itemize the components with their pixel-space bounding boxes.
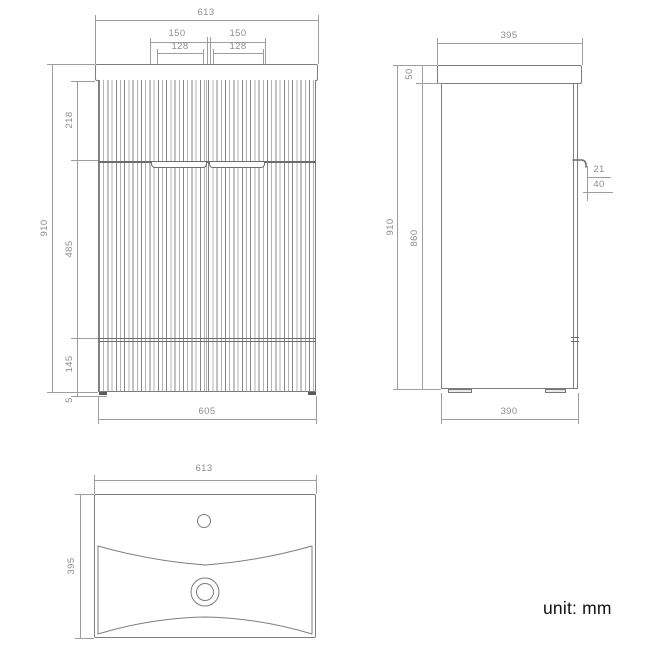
side-foot-left xyxy=(448,389,472,393)
front-dim-128-ext-4 xyxy=(263,49,264,64)
front-dim-128-left-label: 128 xyxy=(171,42,188,52)
front-dim-ext-foot-bottom xyxy=(71,396,107,397)
front-dim-485-label: 485 xyxy=(65,240,75,257)
front-dim-center-ext-a xyxy=(207,37,208,64)
front-split-line-bottom-b xyxy=(98,341,316,342)
front-split-line-top xyxy=(98,161,316,163)
side-dim-395-ext-right xyxy=(582,38,583,65)
front-handle-right xyxy=(209,162,265,168)
front-door-gap-line xyxy=(206,80,207,392)
side-body xyxy=(441,83,578,389)
front-dim-128-ext-1 xyxy=(157,49,158,64)
front-foot-left xyxy=(99,392,107,395)
basin-bowl-drawing xyxy=(94,494,316,638)
front-dim-128-left-line xyxy=(157,53,203,54)
side-dim-40-label: 40 xyxy=(593,180,604,190)
top-dim-613-ext-left xyxy=(94,475,95,494)
side-dim-390-ext-right xyxy=(578,393,579,424)
basin-bowl-outline xyxy=(98,546,312,634)
front-dim-center-ext-b xyxy=(210,37,211,64)
front-handle-left xyxy=(151,162,207,168)
top-dim-613-ext-right xyxy=(316,475,317,494)
front-dim-150-left-label: 150 xyxy=(168,29,185,39)
front-dim-605-label: 605 xyxy=(198,407,215,417)
side-dim-910-line xyxy=(397,65,398,389)
side-front-panel-line xyxy=(573,83,574,389)
front-split-line-bottom-a xyxy=(98,338,316,339)
side-dim-390-line xyxy=(441,419,578,420)
front-dim-910-ext-top xyxy=(47,64,95,65)
side-dim-21-label: 21 xyxy=(593,165,604,175)
front-dim-128-right-line xyxy=(213,53,263,54)
side-dim-390-label: 390 xyxy=(500,407,517,417)
side-dim-21-line xyxy=(587,177,611,178)
side-dim-handle-ref-line xyxy=(587,166,588,201)
side-dim-50-ext-bottom xyxy=(416,83,441,84)
side-dim-395-label: 395 xyxy=(500,31,517,41)
top-dim-395-label: 395 xyxy=(67,557,77,574)
front-dim-ext-485-top xyxy=(71,160,98,161)
side-dim-50-label: 50 xyxy=(405,68,415,79)
front-dim-910-line xyxy=(52,64,53,392)
front-dim-150-ext-right xyxy=(265,38,266,64)
front-dim-128-ext-2 xyxy=(203,49,204,64)
side-dim-395-ext-left xyxy=(437,38,438,65)
side-dim-910-label: 910 xyxy=(386,218,396,235)
side-worktop xyxy=(437,65,582,84)
front-dim-613-ext-left xyxy=(95,15,96,64)
front-dim-605-ext-left xyxy=(98,396,99,424)
side-dim-390-ext-left xyxy=(441,393,442,424)
front-dim-613-ext-right xyxy=(318,15,319,64)
front-dim-150-ext-left xyxy=(150,38,151,64)
top-dim-613-label: 613 xyxy=(195,464,212,474)
front-dim-128-right-label: 128 xyxy=(229,42,246,52)
unit-note: unit: mm xyxy=(543,598,612,619)
front-dim-150-right-label: 150 xyxy=(229,29,246,39)
side-dim-860-label: 860 xyxy=(410,229,420,246)
side-dim-910-ext-top xyxy=(393,65,437,66)
front-dim-605-ext-right xyxy=(316,396,317,424)
vanity-technical-drawing: 613 150 150 128 128 910 xyxy=(0,0,650,650)
front-dim-218-label: 218 xyxy=(65,111,75,128)
front-dim-145-label: 145 xyxy=(65,355,75,372)
front-dim-910-label: 910 xyxy=(40,219,50,236)
side-split-tick xyxy=(571,337,579,342)
side-dim-910-ext-bottom xyxy=(393,389,441,390)
front-foot-right xyxy=(308,392,316,395)
front-worktop xyxy=(95,64,318,81)
front-dim-613-line xyxy=(95,20,318,21)
front-dim-613-label: 613 xyxy=(197,8,214,18)
tap-hole-icon xyxy=(198,515,211,528)
side-dim-40-line xyxy=(583,192,613,193)
front-dim-column-line xyxy=(77,81,78,396)
front-dim-128-ext-3 xyxy=(213,49,214,64)
side-foot-right xyxy=(545,389,566,393)
top-dim-395-line xyxy=(80,494,81,638)
top-dim-395-ext-bottom xyxy=(75,638,94,639)
front-dim-5-label: 5 xyxy=(65,397,75,403)
front-dim-910-ext-bottom xyxy=(47,392,98,393)
front-dim-ext-145-top xyxy=(71,338,98,339)
side-dim-50-860-line xyxy=(422,65,423,389)
top-dim-395-ext-top xyxy=(75,494,94,495)
side-dim-395-line xyxy=(437,43,582,44)
top-dim-613-line xyxy=(94,480,316,481)
front-fluted-body xyxy=(98,80,316,392)
front-dim-ext-218-top xyxy=(71,81,95,82)
front-dim-605-line xyxy=(98,419,316,420)
